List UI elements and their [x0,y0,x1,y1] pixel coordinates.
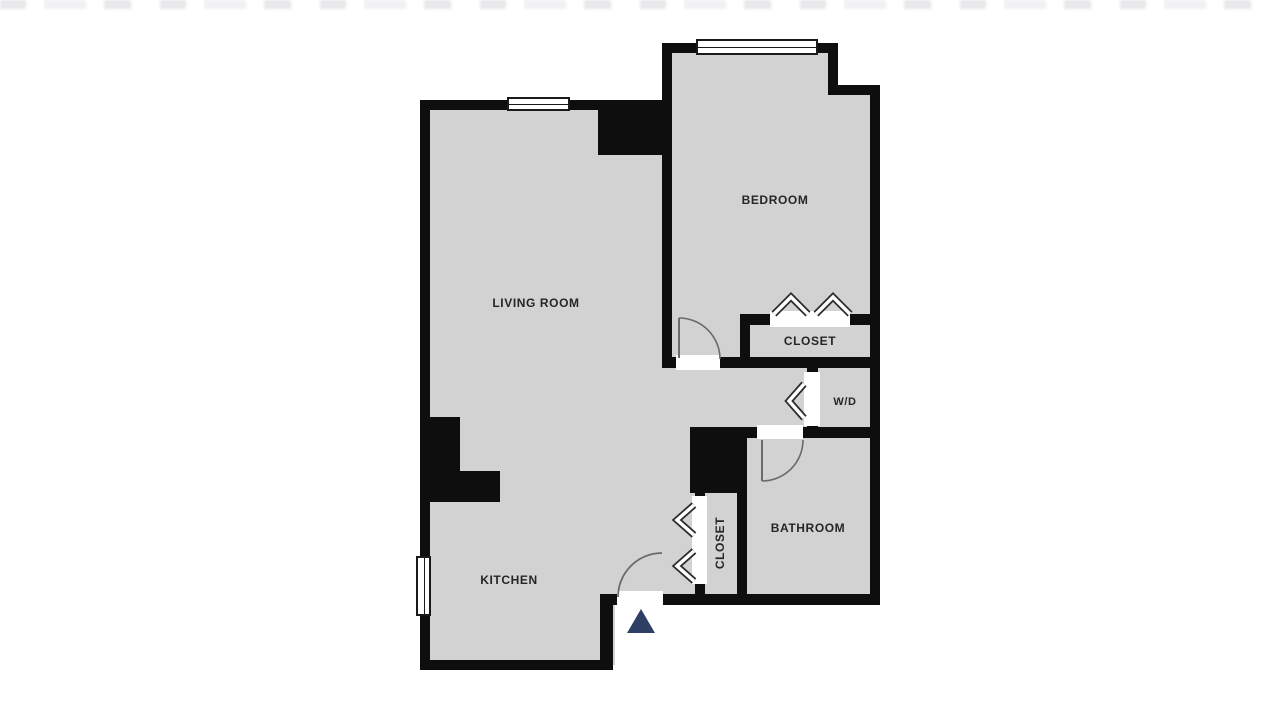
bedroom-closet-bifold-icon [816,297,850,314]
laundry-label: W/D [833,396,856,408]
entrance-marker-icon [627,609,655,633]
living-room-label: LIVING ROOM [492,296,579,310]
door-symbols-layer [0,0,1280,720]
hall-closet-label: CLOSET [713,517,727,569]
bedroom-closet-bifold-icon [774,297,808,314]
bedroom-door-swing-arc [679,318,720,359]
entry-door-swing-arc [618,553,662,597]
bathroom-label: BATHROOM [771,521,846,535]
bedroom-label: BEDROOM [742,193,809,207]
bedroom-closet-label: CLOSET [784,334,836,348]
kitchen-label: KITCHEN [480,573,538,587]
floor-plan-canvas: LIVING ROOM BEDROOM KITCHEN BATHROOM CLO… [0,0,1280,720]
bathroom-door-swing-arc [762,440,803,481]
